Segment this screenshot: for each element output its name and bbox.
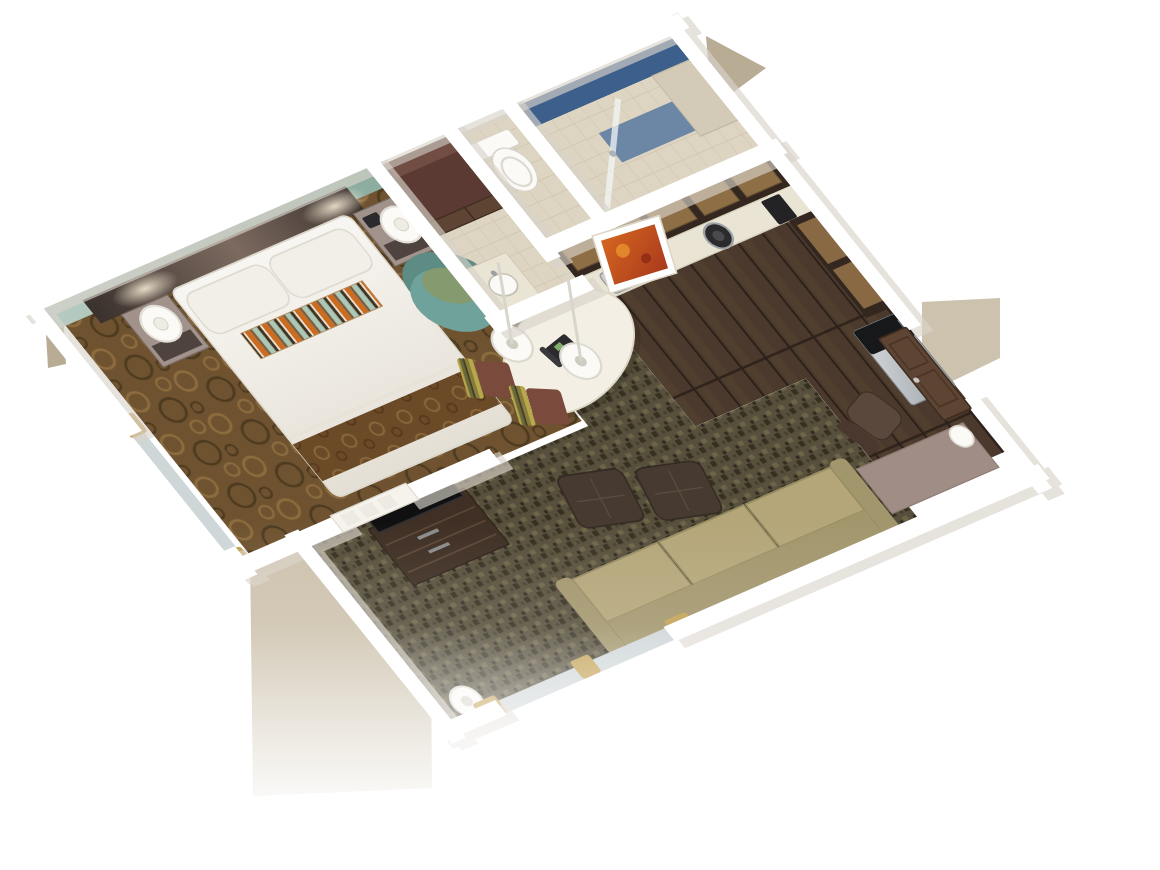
reflection-fade (0, 520, 1160, 870)
floorplan-render-stage (0, 0, 1160, 870)
suite-3d-render (0, 0, 1160, 870)
